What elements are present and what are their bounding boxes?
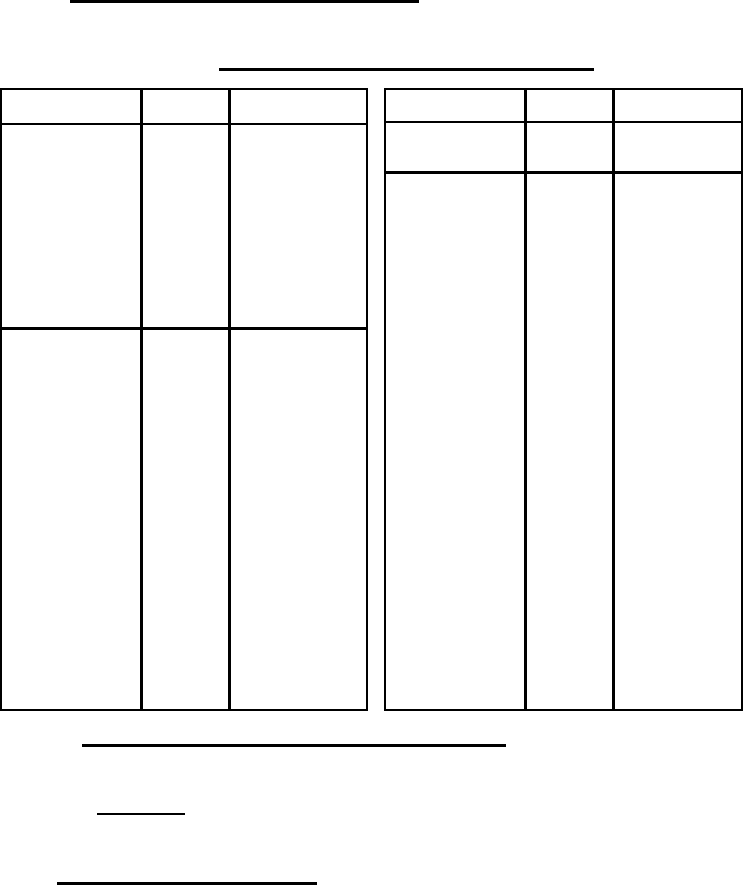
table-cell <box>615 123 741 174</box>
footer-underline-long <box>82 744 506 747</box>
document-page <box>0 0 745 886</box>
table-cell <box>527 174 615 709</box>
table-cell <box>386 174 527 709</box>
footer-underline-bottom <box>57 882 317 885</box>
left-table-header-cell <box>143 90 231 125</box>
table-cell <box>231 125 366 330</box>
left-table-header-cell <box>231 90 366 125</box>
right-table-header-cell <box>527 90 615 123</box>
right-table-header-cell <box>386 90 527 123</box>
footer-underline-short <box>97 813 185 815</box>
top-heading-underline <box>70 0 419 3</box>
table-cell <box>386 123 527 174</box>
table-cell <box>2 125 143 330</box>
table-cell <box>2 330 143 709</box>
left-table-header-cell <box>2 90 143 125</box>
right-table <box>384 88 743 711</box>
table-cell <box>527 123 615 174</box>
right-table-header-cell <box>615 90 741 123</box>
table-cell <box>231 330 366 709</box>
table-cell <box>143 125 231 330</box>
table-title-underline <box>219 68 594 71</box>
table-cell <box>615 174 741 709</box>
table-cell <box>143 330 231 709</box>
left-table <box>0 88 368 711</box>
